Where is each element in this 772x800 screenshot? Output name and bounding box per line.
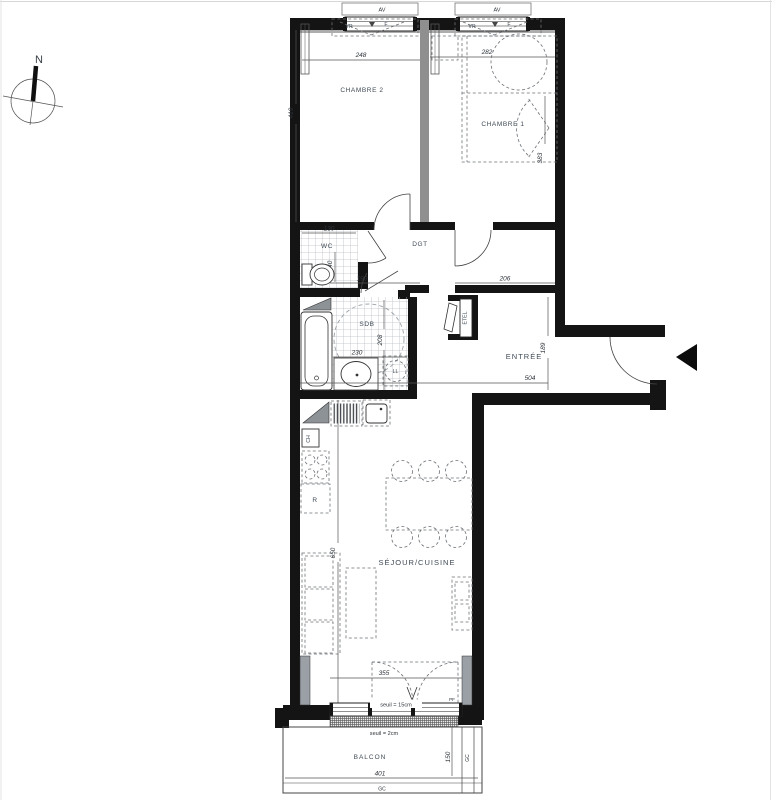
- window-right: AV: [455, 3, 531, 31]
- door-chambre1: [455, 230, 491, 266]
- sdb-sink: [334, 358, 378, 390]
- dim-chambre1-width: 282: [481, 49, 493, 56]
- dim-chambre2-width: 248: [355, 52, 367, 59]
- f-left-label: F: [384, 22, 387, 28]
- floor-plan-drawing: N AV: [0, 0, 772, 800]
- water-heater: CH: [302, 429, 319, 447]
- seuil-balcon-note: seuil = 2cm: [370, 731, 399, 737]
- sdb-shelf: [303, 298, 331, 310]
- window-left-av-tag: AV: [378, 8, 385, 14]
- kitchen-sink: [363, 400, 390, 426]
- dim-dgt-width: 190: [357, 276, 368, 283]
- entry-door-swing: [610, 337, 657, 384]
- vr-left-label: VR: [345, 24, 352, 30]
- dim-sdb-depth: 208: [377, 334, 384, 346]
- room-label-chambre1: CHAMBRE 1: [481, 121, 524, 128]
- fridge: R: [301, 484, 330, 513]
- dim-chambre2-depth: 419: [288, 107, 295, 118]
- room-label-dgt: DGT: [412, 241, 428, 248]
- window-right-av-tag: AV: [493, 8, 500, 14]
- compass-north-label: N: [35, 54, 43, 66]
- pilaster-right: [462, 656, 472, 705]
- etel-door: [444, 303, 457, 332]
- dim-hall-width: 206: [499, 276, 511, 283]
- sofa: [302, 553, 340, 654]
- compass: N: [3, 54, 63, 125]
- window-left: AV: [342, 3, 418, 31]
- dim-entree-width: 504: [525, 375, 536, 382]
- kitchen-drainer: [331, 401, 362, 426]
- compass-needle: [33, 66, 36, 101]
- wardrobe-door-swing: [517, 98, 549, 158]
- etel-label: ETEL: [463, 311, 469, 324]
- seuil-bay-note: seuil = 15cm: [380, 703, 412, 709]
- cooktop: [302, 451, 329, 483]
- door-sdb: [365, 271, 398, 291]
- dim-balcon-depth: 150: [445, 751, 452, 762]
- coffee-table: [346, 568, 376, 638]
- wc-room: WC 130 140: [300, 226, 386, 289]
- furniture-round-table: [491, 34, 547, 90]
- floor-plan-page: N AV: [0, 0, 772, 800]
- threshold-hatch: [330, 716, 458, 727]
- f-right-label: F: [507, 22, 510, 28]
- kitchen-shelf: [303, 402, 329, 423]
- door-wc: [368, 231, 386, 258]
- partition-wall: [420, 20, 429, 222]
- room-label-sejour: SÉJOUR/CUISINE: [379, 558, 456, 567]
- dim-wc-width: 130: [324, 226, 335, 233]
- room-label-chambre2: CHAMBRE 2: [340, 87, 383, 94]
- ch-label: CH: [306, 435, 312, 443]
- room-label-sdb: SDB: [359, 321, 374, 328]
- dim-bay-width: 355: [379, 670, 390, 677]
- pf-tag: PF: [449, 697, 455, 702]
- toilet: [302, 264, 334, 285]
- room-label-balcon: BALCON: [354, 754, 387, 761]
- etel-closet: ETEL: [444, 299, 472, 337]
- dining-table: [386, 461, 472, 548]
- chambre2: CHAMBRE 2 248 419: [288, 24, 420, 230]
- washer-label: LL: [393, 369, 399, 375]
- dim-balcon-width: 401: [375, 771, 386, 778]
- vr-right-label: VR: [468, 24, 475, 30]
- kitchen: CH R: [301, 400, 390, 513]
- gc-bottom-label: GC: [378, 787, 386, 793]
- dim-chambre1-depth: 383: [537, 152, 544, 163]
- room-label-entree: ENTRÉE: [506, 352, 542, 361]
- balcony: seuil = 2cm GC 150 BALCON 401 GC: [283, 716, 482, 793]
- bathtub: [301, 312, 332, 390]
- pilaster-left: [300, 656, 310, 705]
- entry-arrow: [676, 344, 697, 371]
- room-label-wc: WC: [321, 243, 333, 250]
- dim-entree-depth: 189: [540, 342, 547, 353]
- gc-side-label: GC: [465, 754, 471, 762]
- armchair: [452, 577, 472, 630]
- dim-sdb-width: 230: [351, 350, 363, 357]
- door-chambre2: [374, 194, 410, 230]
- fridge-label: R: [312, 497, 317, 504]
